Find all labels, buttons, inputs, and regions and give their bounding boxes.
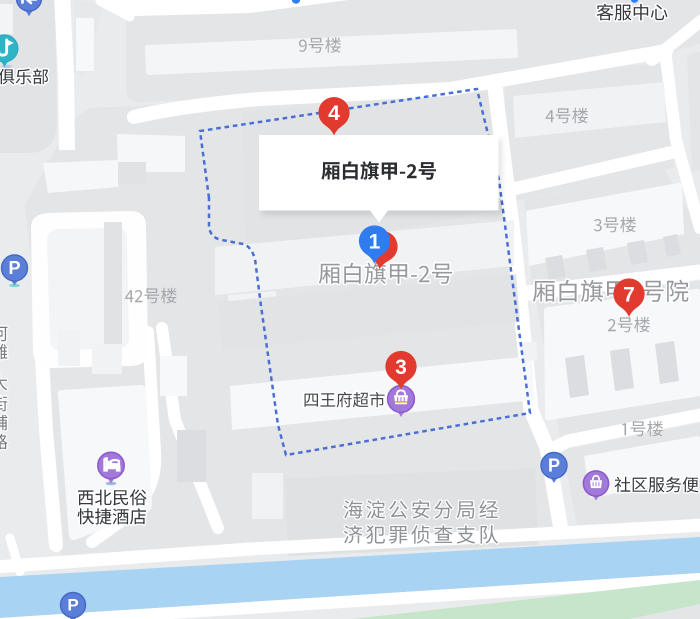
svg-text:P: P [67, 596, 78, 615]
svg-text:1: 1 [369, 231, 381, 254]
svg-text:3: 3 [395, 356, 407, 379]
svg-text:7: 7 [623, 284, 635, 307]
svg-text:P: P [548, 456, 560, 476]
svg-text:P: P [8, 258, 20, 278]
svg-text:4: 4 [328, 102, 340, 125]
